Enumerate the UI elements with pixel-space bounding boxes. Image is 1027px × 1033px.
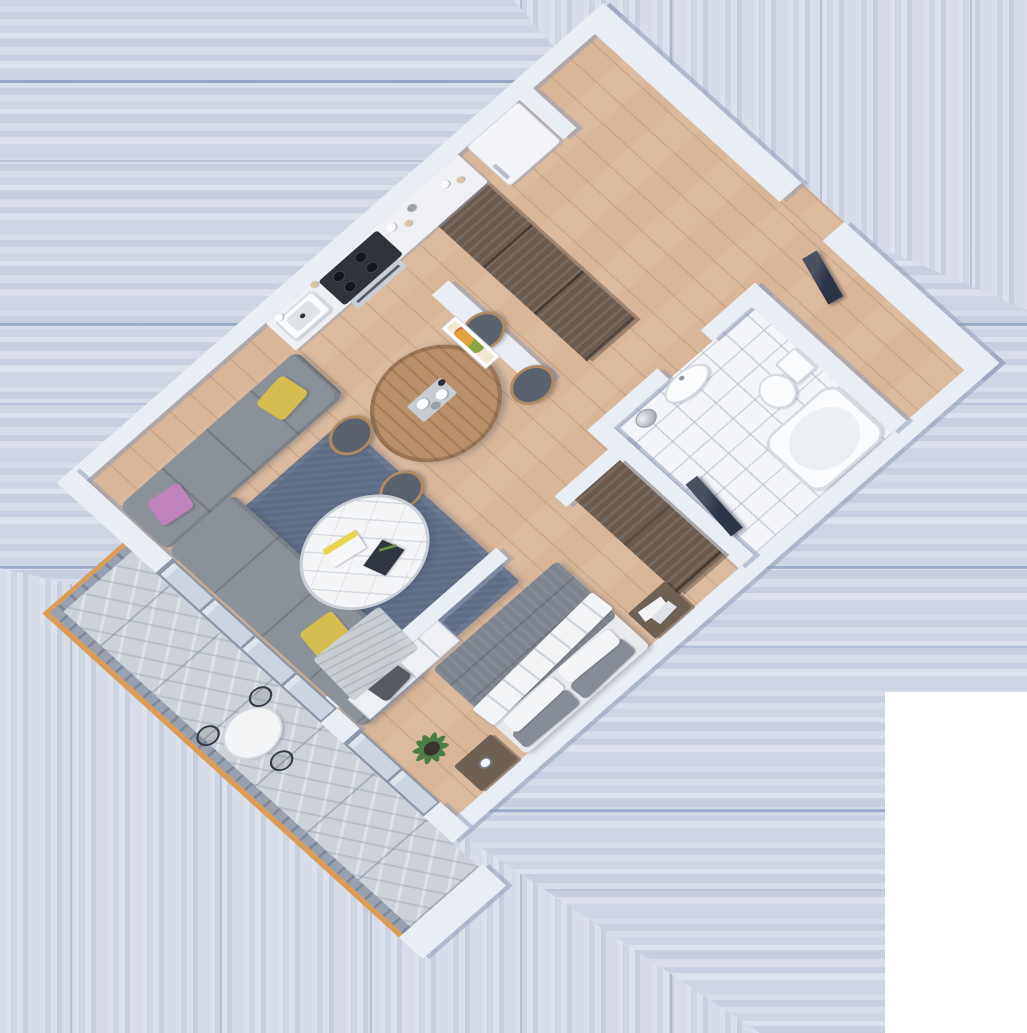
- burner-1: [330, 268, 348, 284]
- burner-4: [363, 260, 381, 276]
- canvas: { "scene": { "label": "3D isometric floo…: [0, 0, 1027, 1033]
- background-white-corner: [885, 692, 1027, 1033]
- apartment-floor-plan: [0, 0, 1027, 973]
- burner-3: [341, 279, 359, 295]
